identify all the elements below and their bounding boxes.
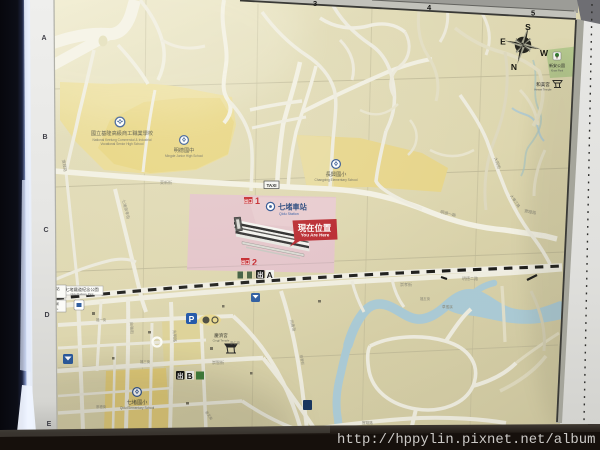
svg-text:D: D [44, 312, 49, 319]
svg-text:B: B [42, 134, 47, 141]
svg-text:C: C [43, 227, 48, 234]
svg-text:E: E [47, 421, 52, 428]
svg-text:http://hppylin.pixnet.net/albu: http://hppylin.pixnet.net/album [337, 432, 595, 448]
svg-text:5: 5 [531, 9, 535, 18]
svg-text:A: A [41, 35, 46, 42]
svg-text:3: 3 [313, 0, 317, 8]
